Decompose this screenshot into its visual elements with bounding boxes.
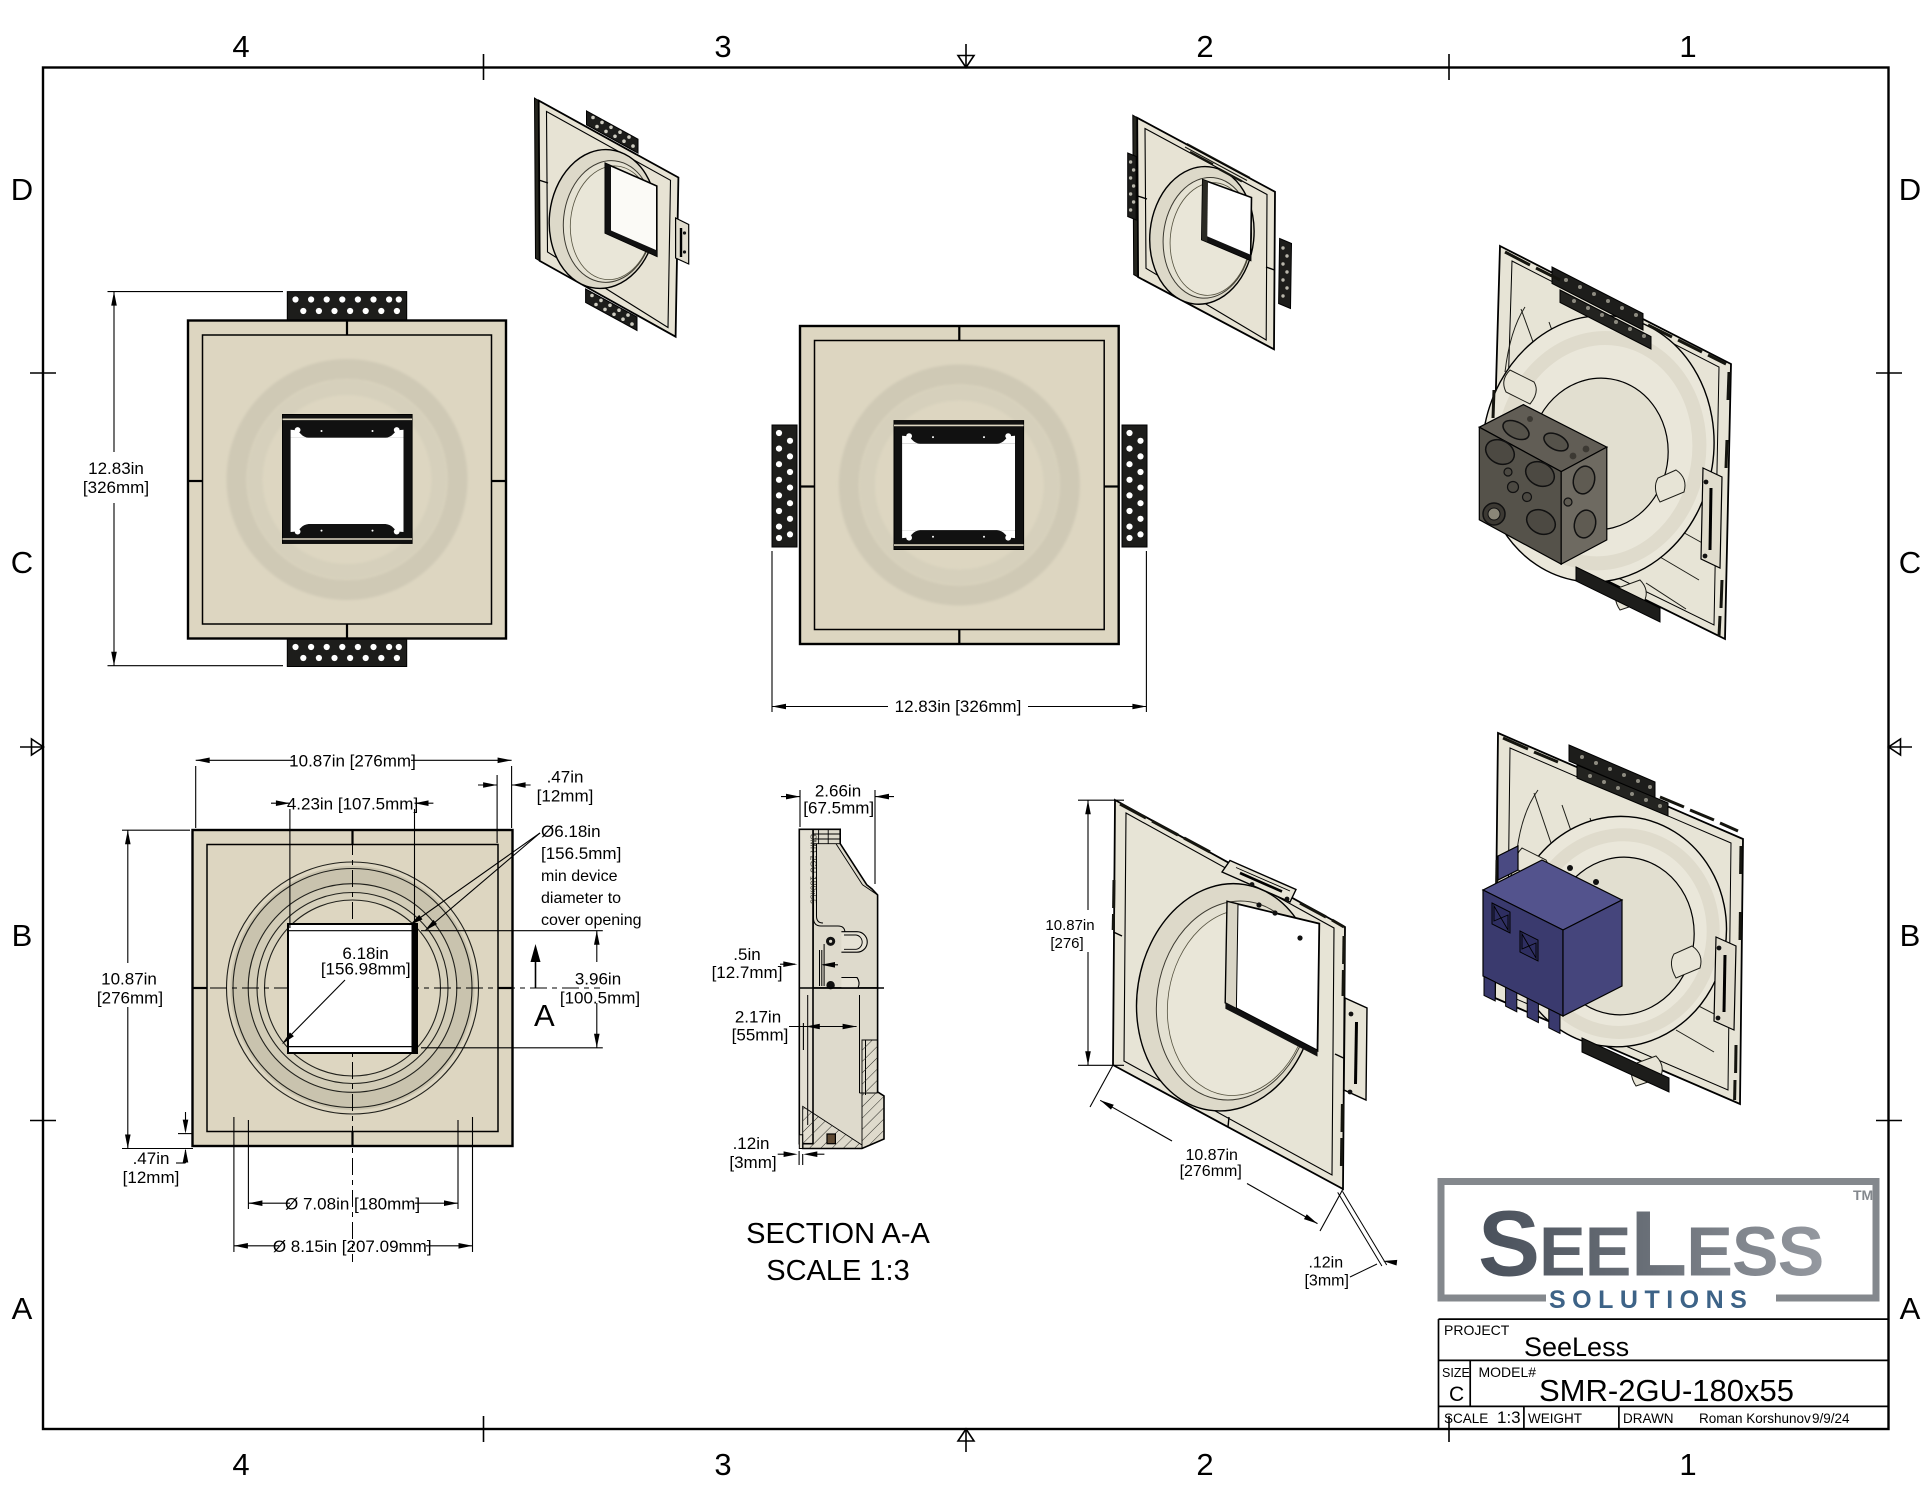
svg-text:[12.7mm]: [12.7mm] (712, 963, 783, 982)
svg-text:3.96in: 3.96in (575, 970, 621, 989)
svg-text:C: C (1449, 1383, 1464, 1406)
svg-text:4: 4 (232, 1447, 249, 1482)
svg-text:[156.5mm]: [156.5mm] (541, 844, 621, 863)
svg-text:B: B (12, 918, 33, 953)
svg-text:SCALE 1:3: SCALE 1:3 (766, 1255, 909, 1287)
svg-text:2: 2 (1196, 1447, 1213, 1482)
svg-text:10.87in [276mm]: 10.87in [276mm] (289, 752, 416, 771)
svg-text:PROJECT: PROJECT (1444, 1322, 1510, 1338)
svg-text:12.83in: 12.83in (88, 459, 144, 478)
svg-text:.47in: .47in (133, 1149, 170, 1168)
svg-text:[100.5mm]: [100.5mm] (560, 989, 640, 1008)
svg-text:[3mm]: [3mm] (729, 1153, 776, 1172)
svg-text:[276]: [276] (1050, 935, 1083, 952)
svg-text:[12mm]: [12mm] (123, 1168, 180, 1187)
svg-text:Ø 7.08in [180mm]: Ø 7.08in [180mm] (285, 1195, 420, 1214)
svg-text:D: D (1899, 172, 1921, 207)
svg-text:[55mm]: [55mm] (732, 1026, 789, 1045)
svg-text:4: 4 (232, 29, 249, 64)
svg-text:SeeLess: SeeLess (1524, 1332, 1629, 1362)
svg-text:D: D (11, 172, 33, 207)
svg-text:C: C (1899, 545, 1921, 580)
svg-text:WEIGHT: WEIGHT (1528, 1411, 1582, 1426)
svg-text:3: 3 (714, 1447, 731, 1482)
svg-text:2.17in: 2.17in (735, 1008, 781, 1027)
svg-text:1:3: 1:3 (1497, 1408, 1521, 1427)
svg-text:[12mm]: [12mm] (537, 787, 594, 806)
svg-text:.12in: .12in (733, 1134, 770, 1153)
svg-text:SCALE: SCALE (1444, 1411, 1488, 1426)
svg-text:.5in: .5in (733, 945, 760, 964)
svg-text:1: 1 (1679, 29, 1696, 64)
svg-text:10.87in: 10.87in (101, 970, 157, 989)
svg-text:diameter to: diameter to (541, 890, 621, 907)
svg-text:B: B (1900, 918, 1921, 953)
svg-text:C: C (11, 545, 33, 580)
svg-text:[326mm]: [326mm] (83, 478, 149, 497)
svg-text:.47in: .47in (547, 768, 584, 787)
svg-text:DRAWN: DRAWN (1623, 1411, 1674, 1426)
svg-text:[67.5mm]: [67.5mm] (803, 799, 874, 818)
svg-text:SMR-2GU-180x55: SMR-2GU-180x55 (1539, 1373, 1794, 1408)
svg-text:SECTION A-A: SECTION A-A (746, 1218, 930, 1250)
svg-text:SOLUTIONS: SOLUTIONS (1549, 1286, 1753, 1314)
svg-text:min device: min device (541, 868, 618, 885)
svg-text:3: 3 (714, 29, 731, 64)
svg-text:SIZE: SIZE (1442, 1366, 1470, 1380)
svg-text:2: 2 (1196, 29, 1213, 64)
svg-text:[156.98mm]: [156.98mm] (321, 960, 411, 979)
svg-text:TM: TM (1853, 1187, 1873, 1203)
svg-text:12.83in [326mm]: 12.83in [326mm] (895, 697, 1022, 716)
svg-text:10.87in: 10.87in (1185, 1147, 1238, 1164)
svg-text:4.23in [107.5mm]: 4.23in [107.5mm] (287, 795, 418, 814)
svg-text:[3mm]: [3mm] (1304, 1273, 1348, 1290)
svg-text:Ø 8.15in [207.09mm]: Ø 8.15in [207.09mm] (273, 1237, 432, 1256)
svg-text:A: A (12, 1291, 33, 1326)
svg-text:[276mm]: [276mm] (97, 989, 163, 1008)
svg-text:A: A (1900, 1291, 1921, 1326)
svg-text:[276mm]: [276mm] (1180, 1163, 1242, 1180)
svg-text:9/9/24: 9/9/24 (1812, 1411, 1850, 1426)
svg-text:cover opening: cover opening (541, 912, 642, 929)
svg-text:10.87in: 10.87in (1045, 917, 1094, 934)
svg-text:MODEL#: MODEL# (1479, 1364, 1537, 1380)
svg-text:Roman Korshunov: Roman Korshunov (1699, 1411, 1811, 1426)
svg-text:A: A (534, 998, 555, 1033)
svg-text:.12in: .12in (1308, 1255, 1343, 1272)
svg-text:1: 1 (1679, 1447, 1696, 1482)
svg-text:Ø6.18in: Ø6.18in (541, 822, 601, 841)
